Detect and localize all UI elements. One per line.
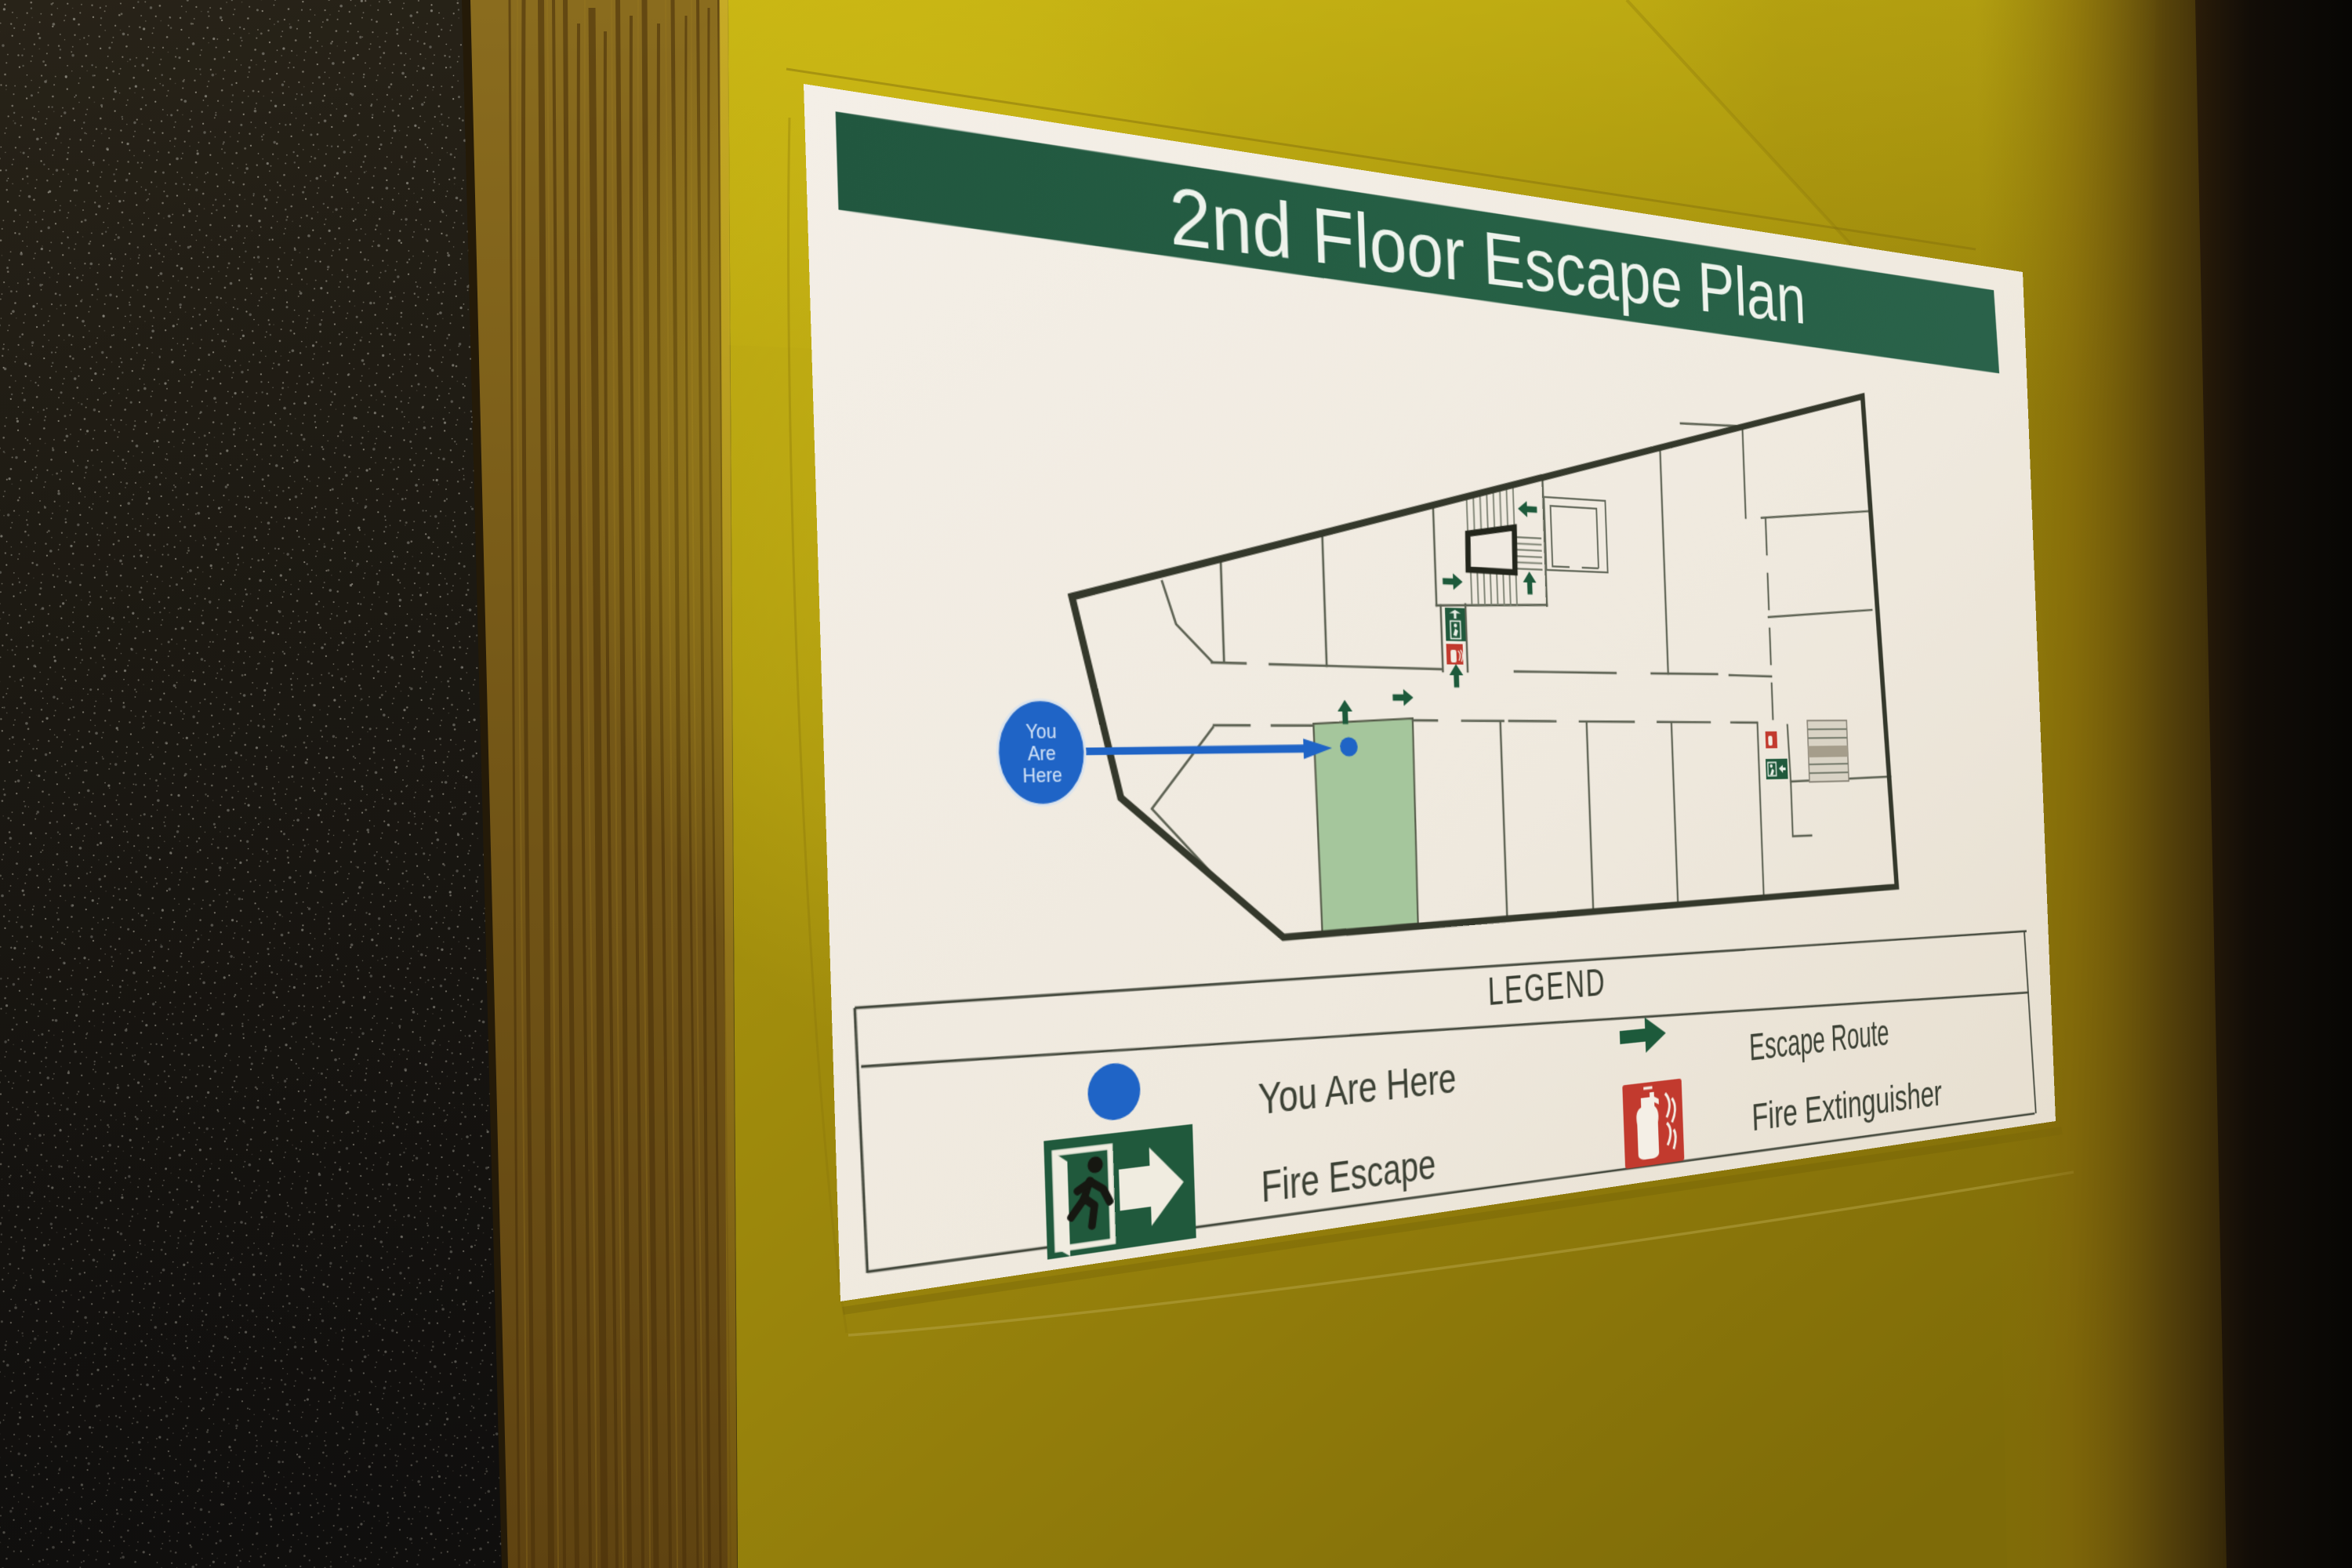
svg-text:You: You xyxy=(1025,721,1057,743)
svg-text:Here: Here xyxy=(1022,765,1062,787)
svg-text:Are: Are xyxy=(1027,743,1056,765)
